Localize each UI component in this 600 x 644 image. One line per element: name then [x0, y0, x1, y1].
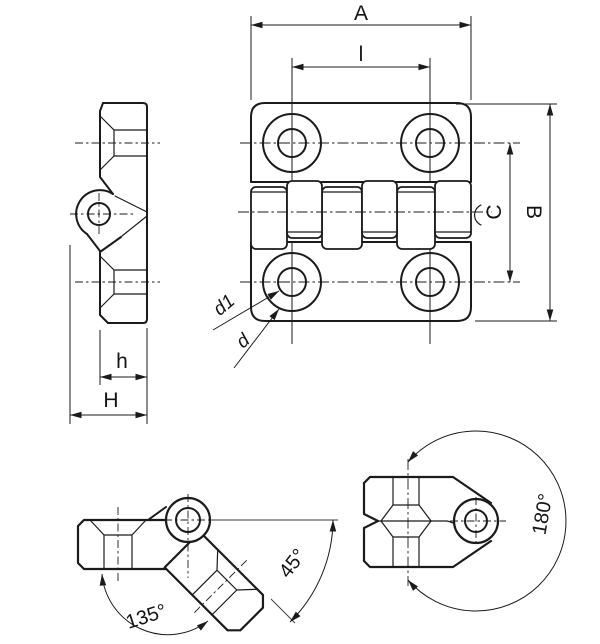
leaf-lobe-junction	[148, 507, 166, 520]
angle-label-135: 135°	[123, 600, 169, 634]
extension-line	[271, 599, 295, 623]
side-outline	[100, 237, 121, 323]
counterbore-bottom	[100, 256, 147, 308]
barrel-knuckles	[251, 181, 481, 249]
leaf-seam	[115, 196, 147, 236]
folded-180-view: 180°	[364, 431, 566, 611]
side-outline	[100, 103, 113, 194]
knuckle-up	[435, 181, 471, 238]
dim-label-h: h	[116, 350, 128, 373]
angle-label-45: 45°	[275, 545, 311, 582]
dim-label-A: A	[354, 2, 368, 25]
dim-label-l: l	[359, 43, 364, 66]
side-view: h H	[70, 103, 160, 424]
open-135-view: 45° 135°	[78, 494, 338, 644]
knuckle-down	[397, 187, 435, 249]
dim-label-d1: d1	[209, 291, 239, 321]
dim-label-C: C	[483, 204, 506, 219]
barrel-lobe	[76, 190, 113, 234]
dim-label-H: H	[103, 389, 118, 412]
drawing-canvas: h H	[0, 0, 600, 644]
knuckle-down	[322, 187, 362, 249]
angle-label-180: 180°	[529, 492, 558, 537]
counterbore-top	[100, 116, 147, 170]
front-view: A l B C d1 d	[209, 2, 557, 368]
dim-label-B: B	[522, 205, 545, 219]
knuckle-down	[251, 187, 287, 249]
knuckle-up	[362, 181, 397, 238]
pin-end-cap	[475, 205, 481, 225]
knuckle-up	[287, 181, 322, 238]
hinge-technical-drawing: h H	[0, 0, 600, 644]
barrel-wedge	[87, 234, 100, 251]
dim-label-d: d	[233, 329, 256, 353]
